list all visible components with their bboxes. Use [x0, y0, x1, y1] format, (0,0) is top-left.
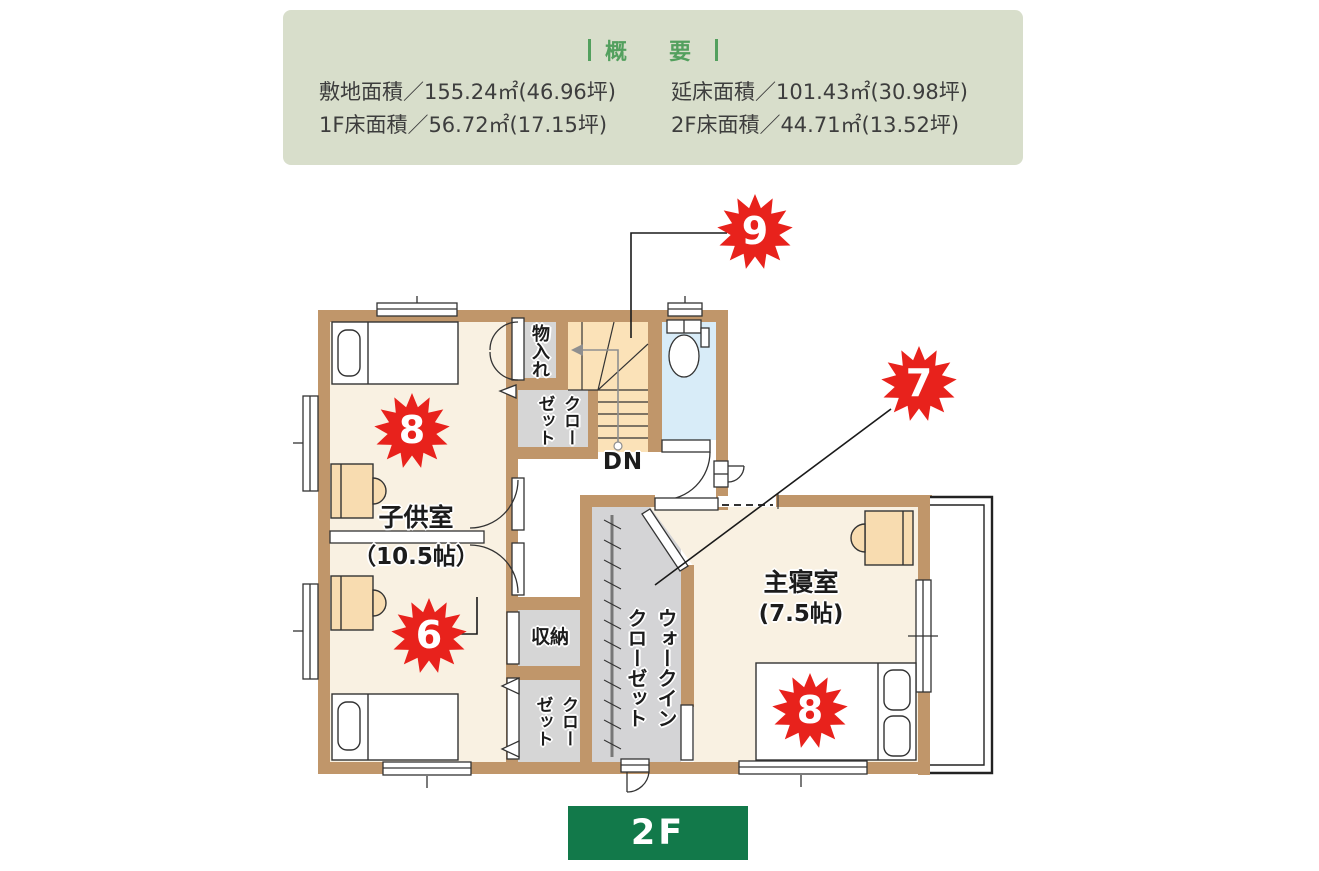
room-label-master-name: 主寝室 — [740, 568, 862, 598]
room-label-kids-name: 子供室 — [350, 503, 482, 533]
badge-8-master: 8 — [772, 673, 848, 749]
badge-7-number: 7 — [881, 346, 957, 422]
badge-8-kids-number: 8 — [374, 393, 450, 469]
page: 概 要 敷地面積／155.24㎡(46.96坪) 延床面積／101.43㎡(30… — [0, 0, 1319, 871]
stairs-down-label: DN — [596, 449, 650, 476]
room-label-kids-size: （10.5帖） — [336, 544, 496, 571]
floor-name-badge: 2F — [568, 806, 748, 860]
badge-6: 6 — [391, 598, 467, 674]
badge-7: 7 — [881, 346, 957, 422]
room-label-shuno: 収納 — [520, 626, 580, 648]
balcony — [930, 497, 992, 773]
room-label-closet-bottom: クロー ゼット — [522, 686, 580, 756]
badge-9: 9 — [717, 194, 793, 270]
room-label-storage-top: 物入れ — [521, 321, 553, 381]
badge-8-kids: 8 — [374, 393, 450, 469]
badge-6-number: 6 — [391, 598, 467, 674]
badge-9-number: 9 — [717, 194, 793, 270]
room-label-closet-top: クロー ゼット — [524, 393, 582, 447]
room-label-master-size: (7.5帖) — [740, 601, 862, 628]
room-label-wic: ウォークイン クローゼット — [625, 577, 681, 759]
badge-8-master-number: 8 — [772, 673, 848, 749]
